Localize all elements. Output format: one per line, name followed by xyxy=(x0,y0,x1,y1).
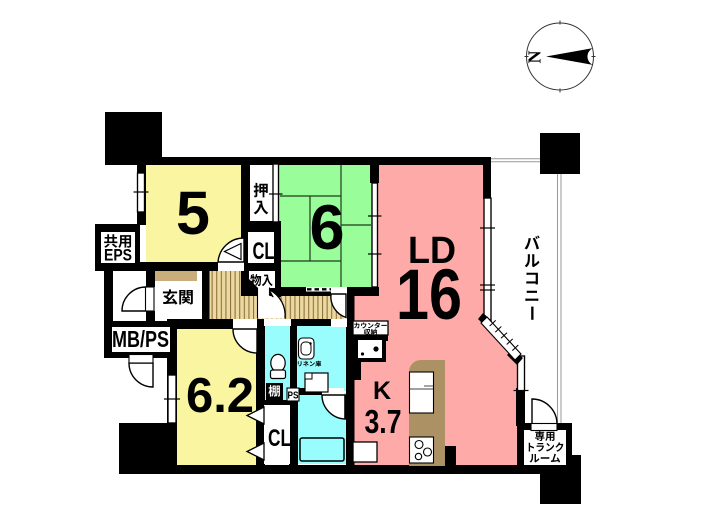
svg-text:6.2: 6.2 xyxy=(186,369,254,423)
svg-text:CL: CL xyxy=(268,425,291,452)
svg-text:3.7: 3.7 xyxy=(365,403,402,440)
svg-text:16: 16 xyxy=(396,256,462,335)
svg-text:N: N xyxy=(525,51,545,64)
svg-text:EPS: EPS xyxy=(104,246,132,265)
svg-text:K: K xyxy=(373,377,391,405)
svg-text:MB/PS: MB/PS xyxy=(112,326,169,352)
svg-text:6: 6 xyxy=(309,193,344,263)
svg-text:CL: CL xyxy=(253,238,275,265)
svg-text:5: 5 xyxy=(176,179,210,247)
svg-text:PS: PS xyxy=(288,391,299,402)
